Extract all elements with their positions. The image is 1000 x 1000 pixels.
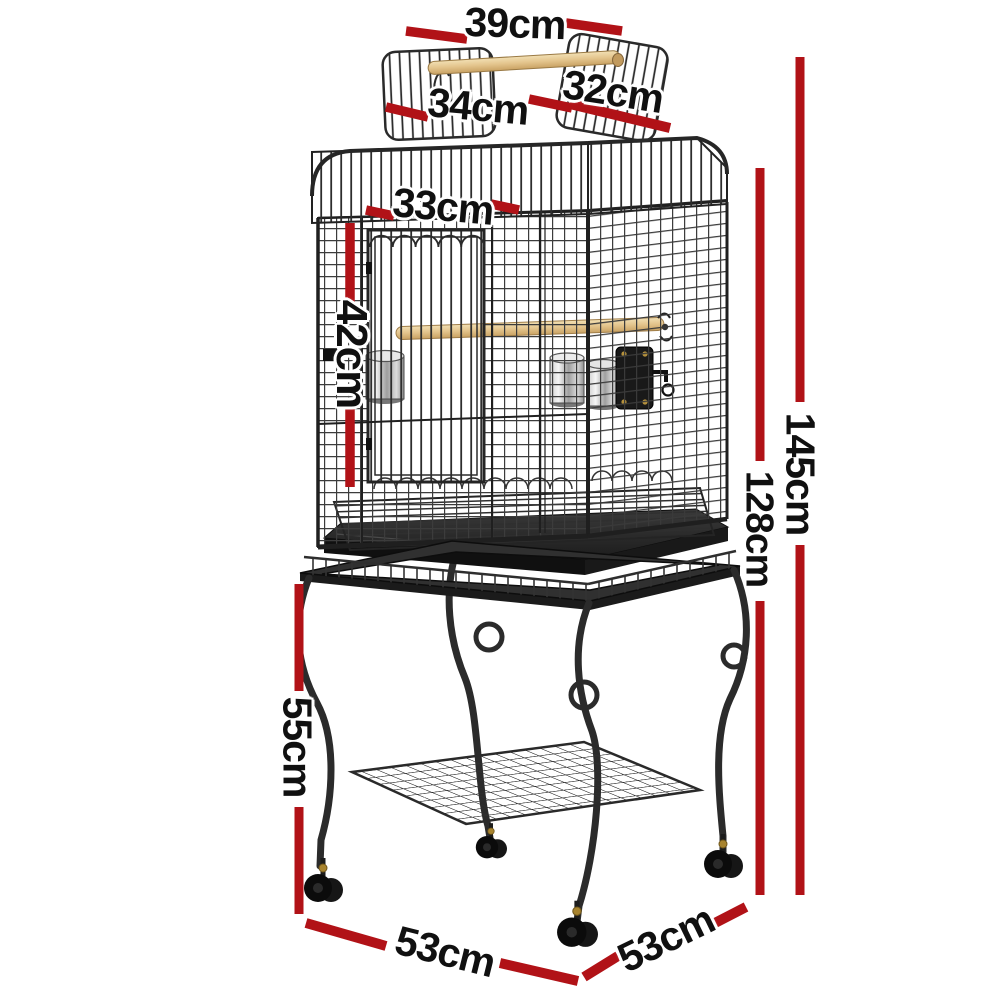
bird-cage-illustration [0,0,1000,1000]
caster-wheel-right [704,834,743,878]
dimension-label-top-perch-width: 39cm [464,2,566,46]
caster-wheel-back [476,823,507,858]
caster-wheel-left [304,858,343,902]
stand [298,541,746,947]
dim-line-39cm-right [566,23,622,31]
caster-wheel-front [557,901,598,947]
front-door [366,230,484,482]
dim-line-53cm-width-left [306,923,386,946]
product-dimension-diagram: 39cm 34cm 32cm 33cm 42cm 145cm 128cm 55c… [0,0,1000,1000]
dimension-label-front-door-height: 42cm [329,300,373,409]
dim-line-33cm-left [366,210,394,216]
dimension-label-stand-height: 55cm [277,697,318,798]
right-face-mesh [588,200,727,535]
perch-end-cap [613,54,624,67]
dim-line-39cm-left [406,31,467,39]
dim-line-53cm-depth-right [713,907,746,924]
dimension-label-front-door-width: 33cm [391,182,495,232]
right-leg [719,570,747,852]
dim-line-53cm-width-right [500,963,578,981]
door-hinge-bottom [366,438,372,450]
door-hinge-top [366,262,372,274]
dim-line-33cm-right [491,204,519,210]
stand-legs [298,570,746,922]
dimension-label-cage-height: 128cm [740,471,779,587]
dim-line-53cm-depth-left [584,956,618,977]
dimension-label-left-roof-door: 34cm [426,82,530,132]
lower-shelf [352,742,700,824]
dimension-label-total-height: 145cm [780,413,821,536]
cage-body [318,200,727,547]
decorative-rings [476,624,745,708]
